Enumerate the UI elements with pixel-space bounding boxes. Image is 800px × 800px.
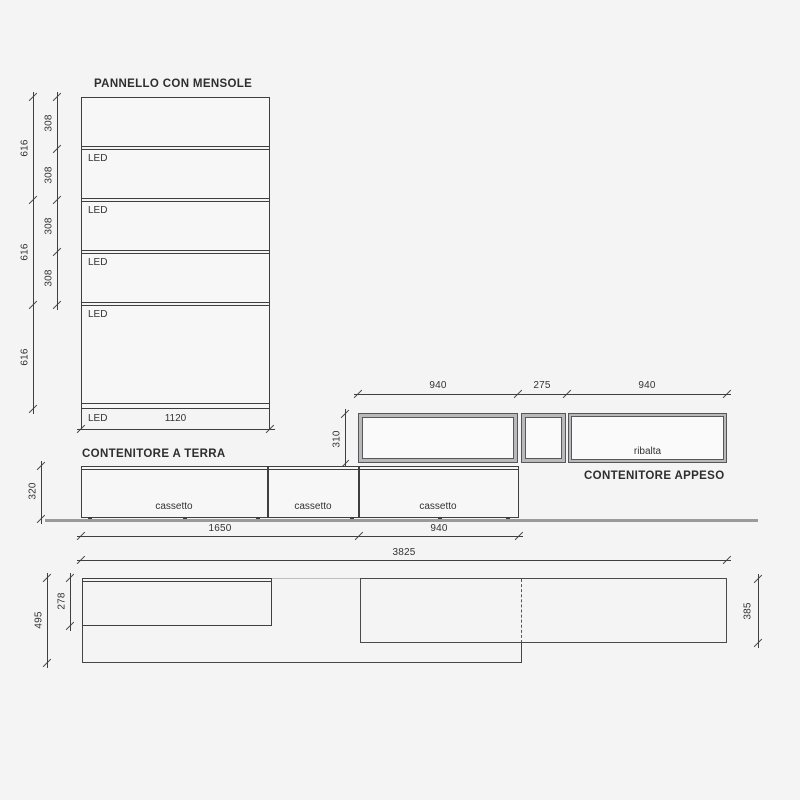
led-label: LED — [88, 257, 107, 268]
wall-unit-flap-module: ribalta — [568, 413, 727, 463]
panel-width-dim-label: 1120 — [165, 413, 187, 424]
shelf-divider — [82, 146, 269, 150]
dim-line — [758, 574, 759, 648]
drawer-label: cassetto — [294, 501, 331, 512]
dim-line — [41, 461, 42, 524]
dim-616-label: 616 — [20, 243, 31, 260]
shelf-divider — [82, 302, 269, 306]
dim-278-label: 278 — [57, 592, 68, 609]
plan-wall-unit — [360, 578, 727, 643]
dim-275-label: 275 — [533, 380, 550, 391]
dim-1650-label: 1650 — [208, 523, 231, 534]
dim-310-label: 310 — [332, 430, 343, 447]
dim-495-label: 495 — [34, 611, 45, 628]
flap-label: ribalta — [634, 446, 661, 457]
wall-unit-left-module — [358, 413, 518, 463]
shelf-divider — [82, 250, 269, 254]
module-divider — [267, 467, 269, 517]
led-label: LED — [88, 413, 107, 424]
wall-unit-middle-module — [521, 413, 566, 463]
dim-940-label: 940 — [429, 380, 446, 391]
dim-line — [77, 536, 523, 537]
dim-line — [345, 409, 346, 468]
shelf-divider — [82, 198, 269, 202]
dim-308-label: 308 — [44, 269, 55, 286]
panel-led-strip: LED 1120 — [81, 409, 270, 429]
led-label: LED — [88, 309, 107, 320]
wall-unit-title: CONTENITORE APPESO — [584, 470, 725, 482]
dim-line — [57, 92, 58, 310]
dim-940-label: 940 — [430, 523, 447, 534]
dim-320-label: 320 — [28, 482, 39, 499]
led-label: LED — [88, 153, 107, 164]
dim-940-label: 940 — [638, 380, 655, 391]
dim-616-label: 616 — [20, 348, 31, 365]
dim-308-label: 308 — [44, 114, 55, 131]
floor-line — [45, 519, 758, 522]
dim-308-label: 308 — [44, 166, 55, 183]
dim-line — [33, 92, 34, 414]
panel-edge-line — [83, 581, 271, 582]
plan-panel — [82, 578, 272, 626]
panel-width-dim-line — [77, 429, 275, 430]
panel-title: PANNELLO CON MENSOLE — [94, 78, 252, 90]
drawer-label: cassetto — [419, 501, 456, 512]
floor-unit-title: CONTENITORE A TERRA — [82, 448, 226, 460]
dim-line — [70, 573, 71, 631]
dim-line — [354, 394, 731, 395]
dim-385-label: 385 — [743, 602, 754, 619]
module-divider — [358, 467, 360, 517]
shelf-divider — [82, 403, 269, 404]
module-front: ribalta — [571, 416, 724, 460]
module-front — [362, 417, 514, 459]
dim-line — [77, 560, 731, 561]
panel-elevation-box: LED LED LED LED — [81, 97, 270, 409]
module-front — [525, 417, 562, 459]
plan-floor-unit-right-edge — [521, 643, 522, 663]
top-edge-line — [82, 469, 518, 470]
dim-308-label: 308 — [44, 217, 55, 234]
dim-3825-label: 3825 — [392, 547, 415, 558]
led-label: LED — [88, 205, 107, 216]
dim-line — [47, 573, 48, 668]
dim-616-label: 616 — [20, 139, 31, 156]
drawer-label: cassetto — [155, 501, 192, 512]
technical-drawing: PANNELLO CON MENSOLE LED LED LED LED LED… — [0, 0, 800, 800]
floor-unit-box: cassetto cassetto cassetto — [81, 466, 519, 518]
